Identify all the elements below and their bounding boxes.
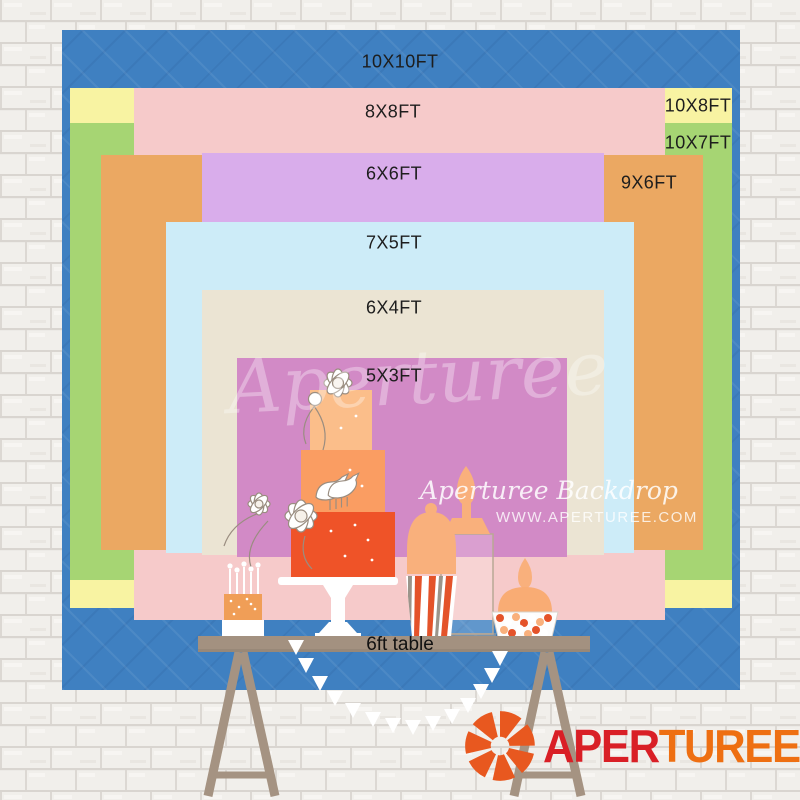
candy-jar: [492, 558, 558, 641]
mini-cake-with-candles: [222, 561, 264, 637]
watermark-center: Aperturee: [226, 327, 578, 431]
watermark-url-line: WWW.APERTUREE.COM: [496, 509, 676, 526]
backdrop-size-chart: Aperturee Aperturee Backdrop WWW.APERTUR…: [0, 0, 800, 800]
logo-text-part2: TUREE: [659, 720, 800, 772]
popcorn-box: [406, 503, 457, 637]
table-size-label: 6ft table: [366, 634, 434, 656]
watermark-backdrop-line: Aperturee Backdrop: [420, 476, 670, 505]
logo-text-part1: APER: [543, 720, 659, 772]
aperture-shutter-icon: [462, 708, 538, 784]
aperturee-logo: APERTUREE: [462, 708, 800, 784]
logo-wordmark: APERTUREE: [543, 719, 800, 773]
